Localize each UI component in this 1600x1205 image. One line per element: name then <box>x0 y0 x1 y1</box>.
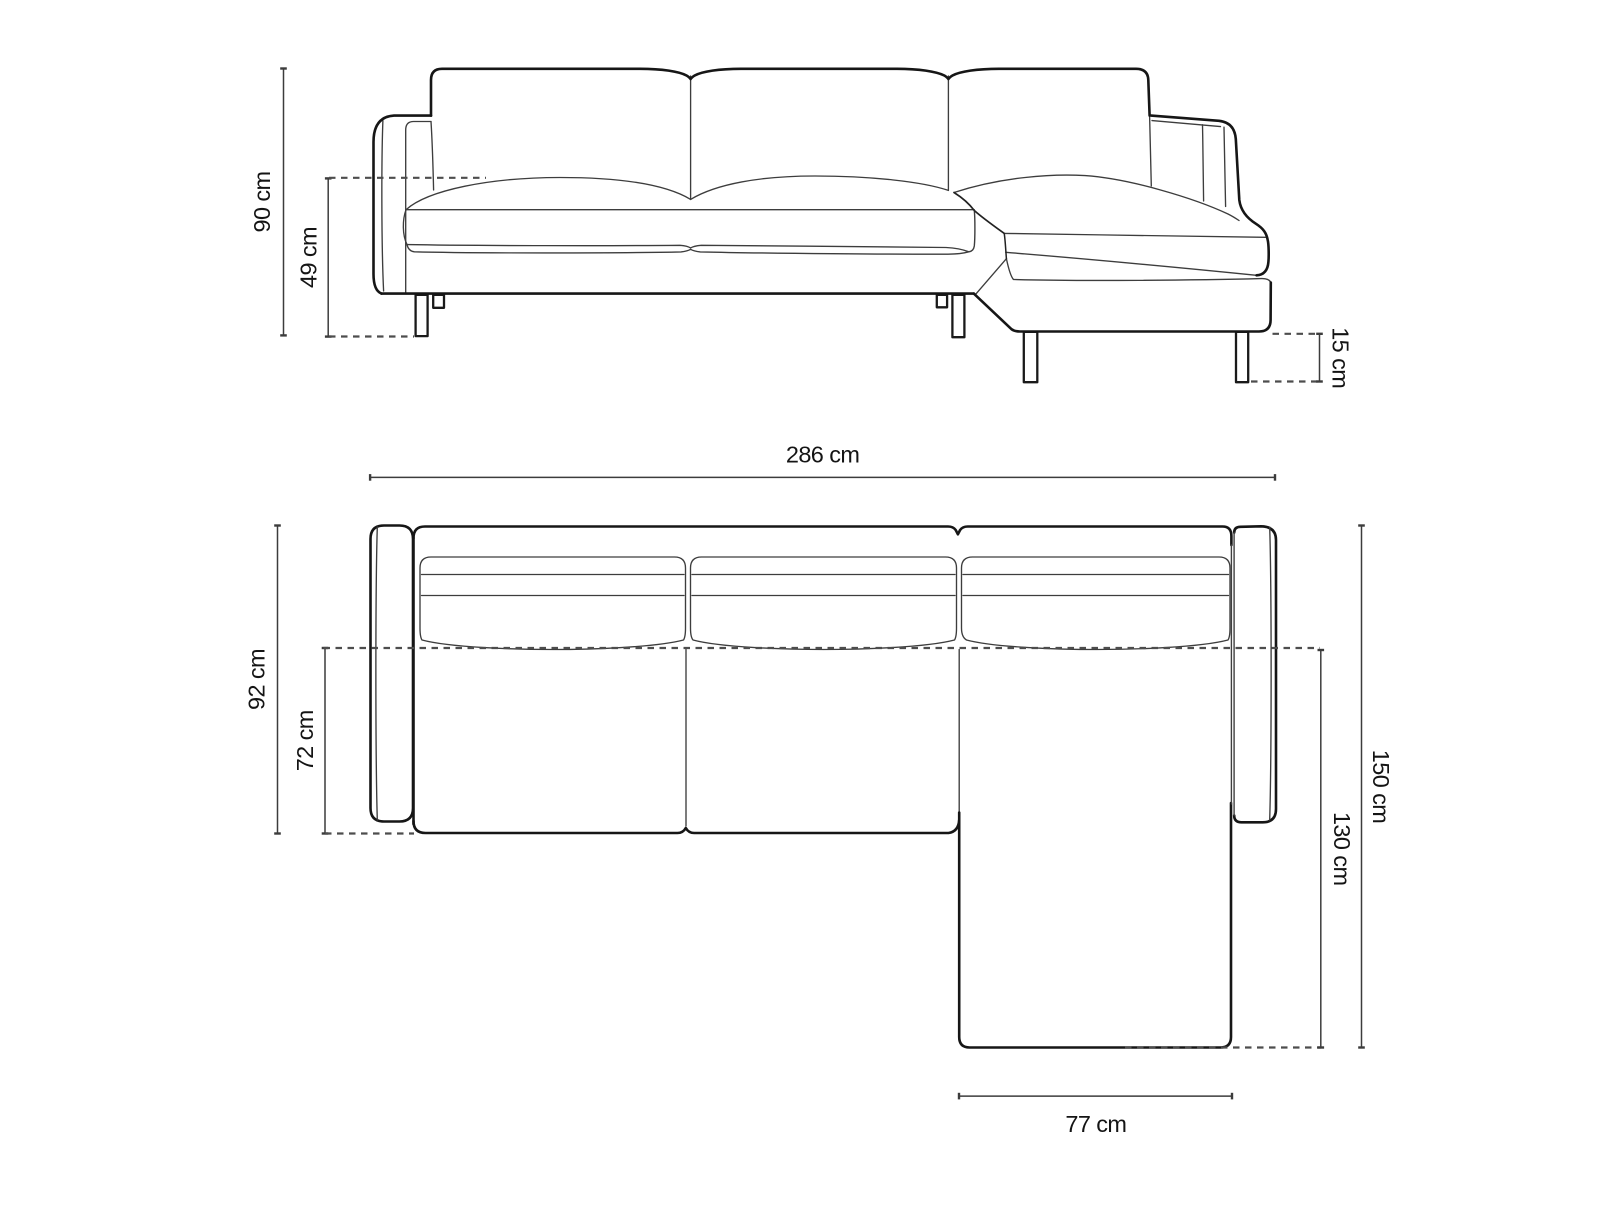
svg-text:77 cm: 77 cm <box>1065 1111 1126 1137</box>
svg-text:150 cm: 150 cm <box>1368 750 1394 823</box>
svg-text:49 cm: 49 cm <box>296 227 322 288</box>
svg-text:90 cm: 90 cm <box>249 171 275 232</box>
svg-text:72 cm: 72 cm <box>292 710 318 771</box>
svg-text:15 cm: 15 cm <box>1328 327 1354 388</box>
svg-text:130 cm: 130 cm <box>1329 812 1355 885</box>
svg-text:92 cm: 92 cm <box>244 649 270 710</box>
svg-text:286 cm: 286 cm <box>786 442 859 468</box>
